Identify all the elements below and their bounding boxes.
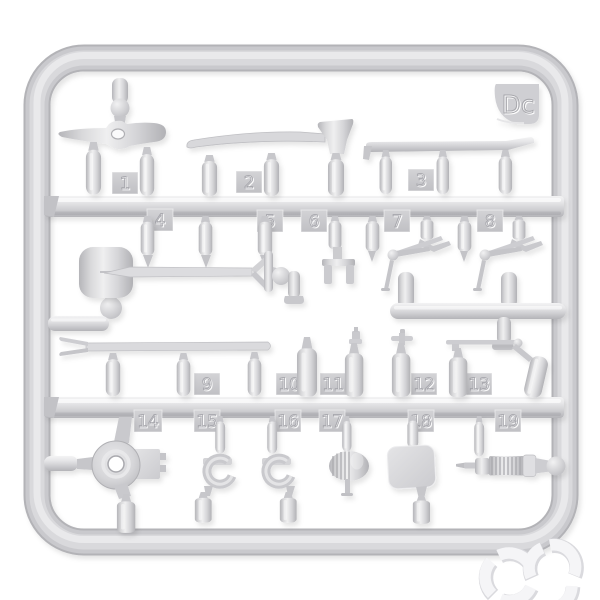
part-4-handle-grips [141,216,213,268]
svg-text:8: 8 [485,212,496,232]
part-tag: 9 [194,373,220,395]
part-tag: 16 [275,410,301,432]
svg-text:16: 16 [277,412,299,432]
lower-runner [44,397,564,418]
part-tag: 7 [384,210,410,232]
part-tag: 19 [495,410,521,432]
lower-left-connector [44,456,93,471]
part-tag: 8 [477,210,503,232]
svg-text:4: 4 [155,211,166,231]
part-tag: 13 [466,373,492,395]
part-tag: 2 [236,171,262,193]
svg-text:2: 2 [244,173,255,193]
part-tag: 6 [301,210,327,232]
svg-text:10: 10 [278,375,300,395]
part-tag: 17 [319,410,345,432]
top-feed-stub [111,78,130,128]
svg-text:6: 6 [309,212,320,232]
part-9-pry-bar [59,337,270,396]
svg-text:3: 3 [416,171,427,191]
left-mid-connector [48,295,122,331]
sprue-product-photo: Dc [0,0,600,600]
part-shovel [79,247,304,304]
part-3-crowbar [363,137,534,194]
svg-text:9: 9 [202,375,213,395]
part-tag: 1 [112,172,138,194]
part-2-axe [187,119,353,196]
svg-text:12: 12 [413,375,435,395]
svg-text:1: 1 [120,174,131,194]
part-11-capped-canister [345,327,363,397]
part-12-valve-canister [391,329,413,397]
part-tag: 14 [134,410,162,432]
part-14-cable-drum-hub [92,417,166,533]
gate-label: Dc [502,90,535,119]
svg-text:19: 19 [497,412,519,432]
svg-text:13: 13 [468,375,490,395]
part-tag: 3 [408,169,434,191]
sprue-canvas: Dc [0,0,600,600]
part-10-canister [297,337,317,397]
svg-text:11: 11 [322,375,344,395]
svg-text:17: 17 [321,412,343,432]
svg-text:7: 7 [392,212,403,232]
part-tag: 11 [320,373,347,395]
part-tag: 12 [411,373,437,395]
svg-text:15: 15 [196,412,218,432]
svg-text:14: 14 [137,412,159,432]
